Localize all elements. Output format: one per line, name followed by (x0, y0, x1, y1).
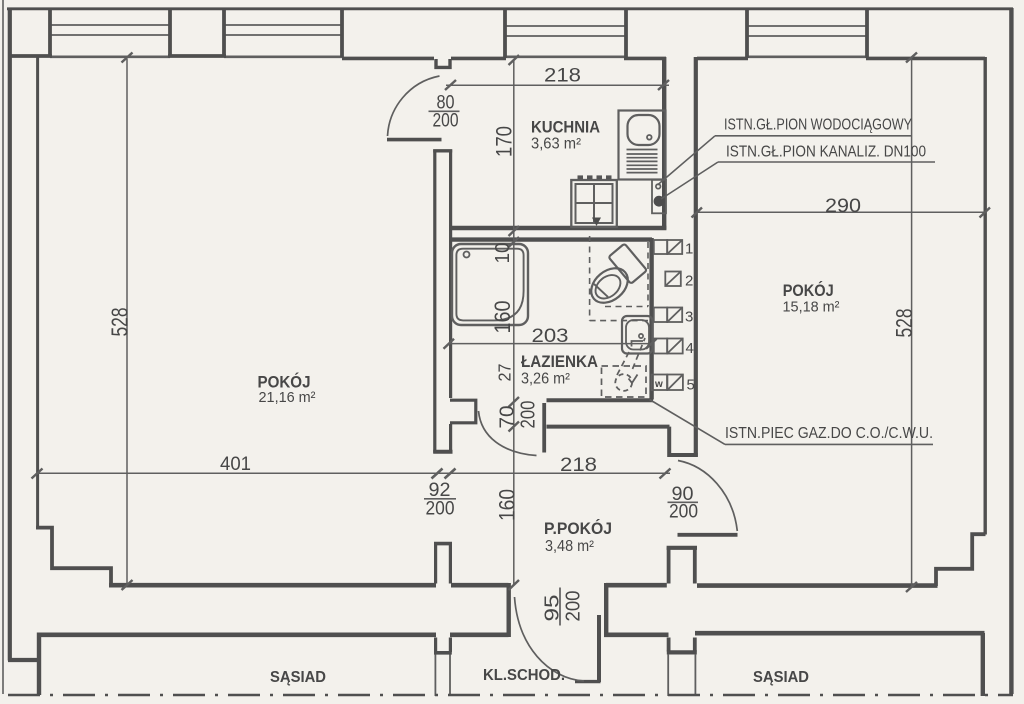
svg-text:160: 160 (495, 489, 520, 521)
svg-text:200: 200 (518, 401, 540, 429)
svg-text:ISTN.GŁ.PION KANALIZ. DN100: ISTN.GŁ.PION KANALIZ. DN100 (726, 144, 926, 161)
svg-text:SĄSIAD: SĄSIAD (270, 669, 326, 686)
svg-text:4: 4 (686, 340, 694, 357)
svg-text:1: 1 (685, 241, 693, 258)
svg-text:ISTN.GŁ.PION WODOCIĄGOWY: ISTN.GŁ.PION WODOCIĄGOWY (724, 117, 912, 134)
svg-text:70: 70 (497, 406, 519, 429)
svg-text:218: 218 (544, 66, 581, 87)
svg-text:200: 200 (433, 111, 459, 132)
svg-text:SĄSIAD: SĄSIAD (753, 669, 809, 686)
svg-text:ŁAZIENKA: ŁAZIENKA (521, 353, 598, 371)
svg-text:528: 528 (106, 308, 132, 337)
svg-text:w: w (654, 379, 663, 390)
svg-text:KUCHNIA: KUCHNIA (531, 118, 600, 137)
svg-text:27: 27 (495, 364, 515, 382)
svg-text:200: 200 (669, 502, 698, 523)
svg-text:P.POKÓJ: P.POKÓJ (544, 519, 612, 538)
svg-text:200: 200 (562, 591, 585, 622)
svg-text:3,63 m²: 3,63 m² (531, 136, 581, 153)
svg-text:3,48 m²: 3,48 m² (545, 538, 594, 555)
svg-text:170: 170 (492, 126, 517, 157)
svg-text:160: 160 (490, 301, 515, 334)
svg-text:POKÓJ: POKÓJ (783, 281, 834, 300)
svg-text:401: 401 (220, 454, 251, 475)
svg-text:10: 10 (492, 243, 514, 264)
svg-text:203: 203 (532, 326, 569, 347)
svg-text:290: 290 (825, 196, 861, 217)
svg-text:21,16 m²: 21,16 m² (259, 389, 316, 406)
svg-text:528: 528 (891, 309, 917, 338)
svg-text:5: 5 (687, 377, 695, 394)
svg-text:15,18 m²: 15,18 m² (783, 299, 840, 316)
svg-text:200: 200 (426, 499, 455, 520)
svg-text:KL.SCHOD.: KL.SCHOD. (483, 667, 565, 684)
svg-text:2: 2 (685, 273, 693, 290)
svg-text:ISTN.PIEC GAZ.DO C.O./C.W.U.: ISTN.PIEC GAZ.DO C.O./C.W.U. (725, 425, 933, 442)
svg-text:3,26 m²: 3,26 m² (521, 371, 570, 388)
svg-text:218: 218 (560, 455, 597, 476)
svg-text:3: 3 (685, 309, 693, 326)
